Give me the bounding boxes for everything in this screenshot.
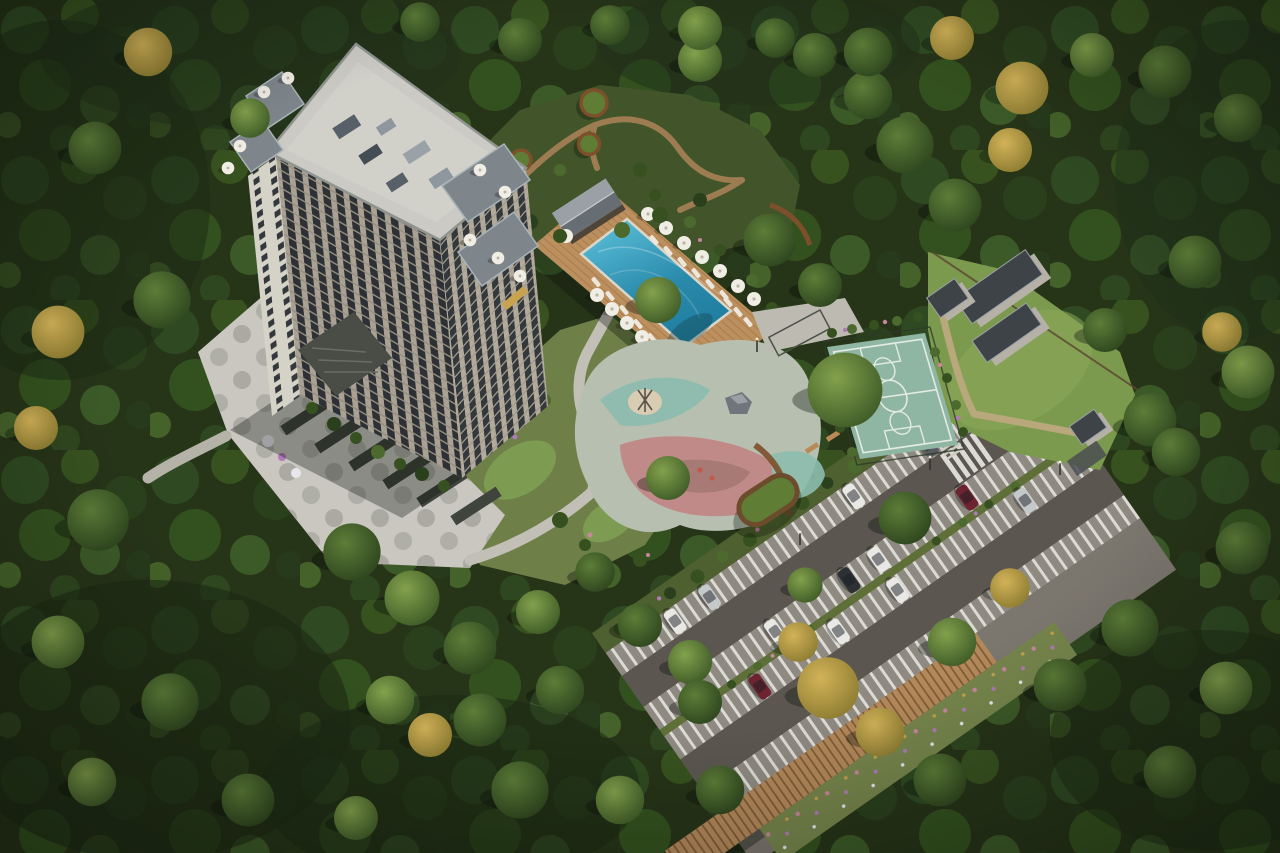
- aerial-render: [0, 0, 1280, 853]
- vignette: [0, 0, 1280, 853]
- scene-canvas: [0, 0, 1280, 853]
